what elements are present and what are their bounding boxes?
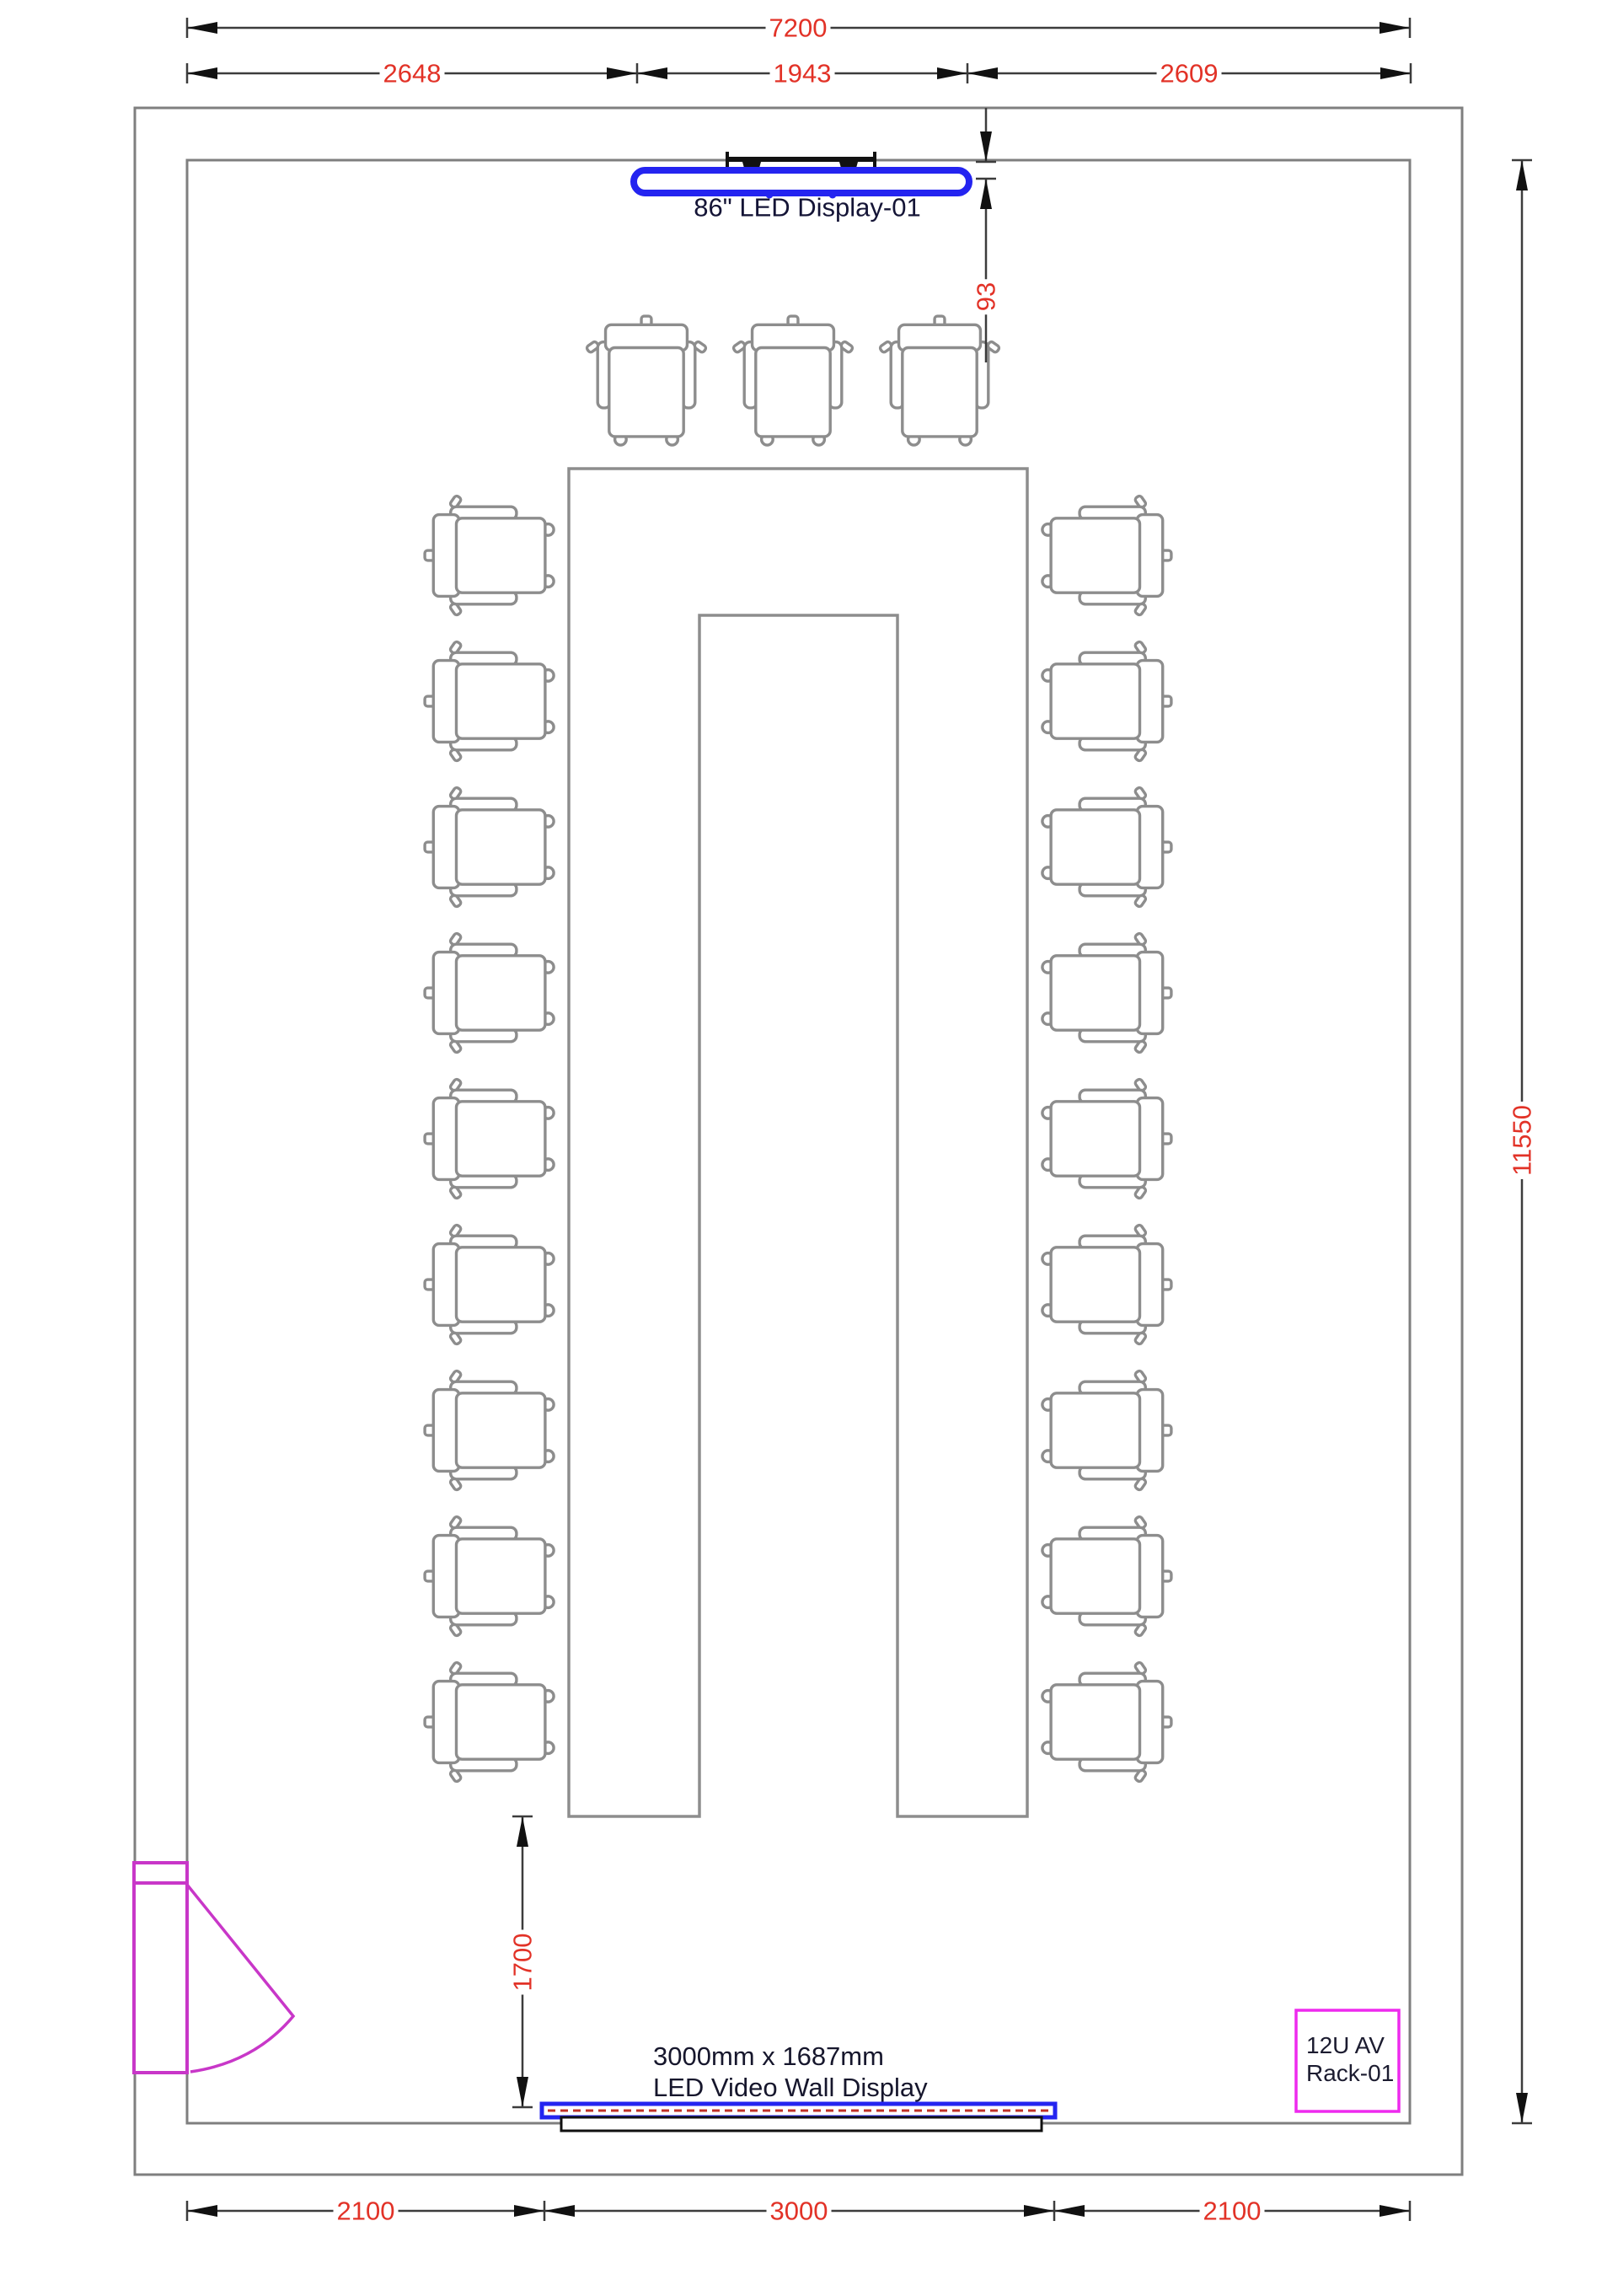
chair (586, 316, 707, 445)
dim-top-left: 2648 (380, 61, 445, 87)
led-display-86 (634, 152, 969, 199)
chair (425, 1370, 554, 1491)
floor-plan-drawing (0, 0, 1618, 2296)
floor-plan: 7200 2648 1943 2609 93 11550 1700 2100 3… (0, 0, 1618, 2296)
dim-top-right: 2609 (1157, 61, 1222, 87)
chair (1042, 1370, 1171, 1491)
chair (1042, 786, 1171, 908)
door (134, 1863, 293, 2073)
chair (1042, 932, 1171, 1054)
door-swing-arc (187, 1885, 293, 2072)
chair-column-left (425, 495, 554, 1783)
led-video-wall (542, 2104, 1055, 2131)
video-wall-base (561, 2117, 1042, 2131)
chair (425, 1661, 554, 1783)
door-frame-header (134, 1863, 187, 1883)
chair (425, 641, 554, 762)
dim-display-gap: 93 (973, 279, 999, 314)
inner-wall (187, 160, 1410, 2123)
dim-room-width: 7200 (766, 15, 831, 41)
chair (1042, 1515, 1171, 1637)
dim-bottom-middle: 3000 (767, 2198, 832, 2224)
chair (1042, 1078, 1171, 1199)
chair (1042, 641, 1171, 762)
chair (732, 316, 854, 445)
chair (425, 1224, 554, 1345)
av-rack-label-line2: Rack-01 (1306, 2059, 1394, 2087)
av-rack-label: 12U AV Rack-01 (1306, 2031, 1394, 2087)
display-label: 86" LED Display-01 (694, 195, 920, 221)
display-screen (634, 170, 969, 193)
conference-table (569, 469, 1027, 1816)
video-wall-label-line1: 3000mm x 1687mm (653, 2041, 928, 2072)
chair (425, 1078, 554, 1199)
dim-table-gap: 1700 (510, 1930, 536, 1995)
dim-room-height: 11550 (1509, 1102, 1535, 1179)
dimension-lines (187, 18, 1532, 2221)
chair (425, 932, 554, 1054)
chair (425, 1515, 554, 1637)
dim-bottom-right: 2100 (1200, 2198, 1265, 2224)
dimension-arrows (187, 22, 1528, 2217)
av-rack-label-line1: 12U AV (1306, 2031, 1394, 2059)
chair (425, 786, 554, 908)
door-leaf (134, 1883, 187, 2073)
video-wall-label: 3000mm x 1687mm LED Video Wall Display (653, 2041, 928, 2103)
chair-row-top (586, 316, 1000, 445)
chair-column-right (1042, 495, 1171, 1783)
chair (879, 316, 1000, 445)
chair (1042, 1661, 1171, 1783)
dim-top-middle: 1943 (770, 61, 835, 87)
dim-bottom-left: 2100 (334, 2198, 399, 2224)
chair (1042, 495, 1171, 616)
chair (1042, 1224, 1171, 1345)
video-wall-label-line2: LED Video Wall Display (653, 2072, 928, 2103)
chair (425, 495, 554, 616)
